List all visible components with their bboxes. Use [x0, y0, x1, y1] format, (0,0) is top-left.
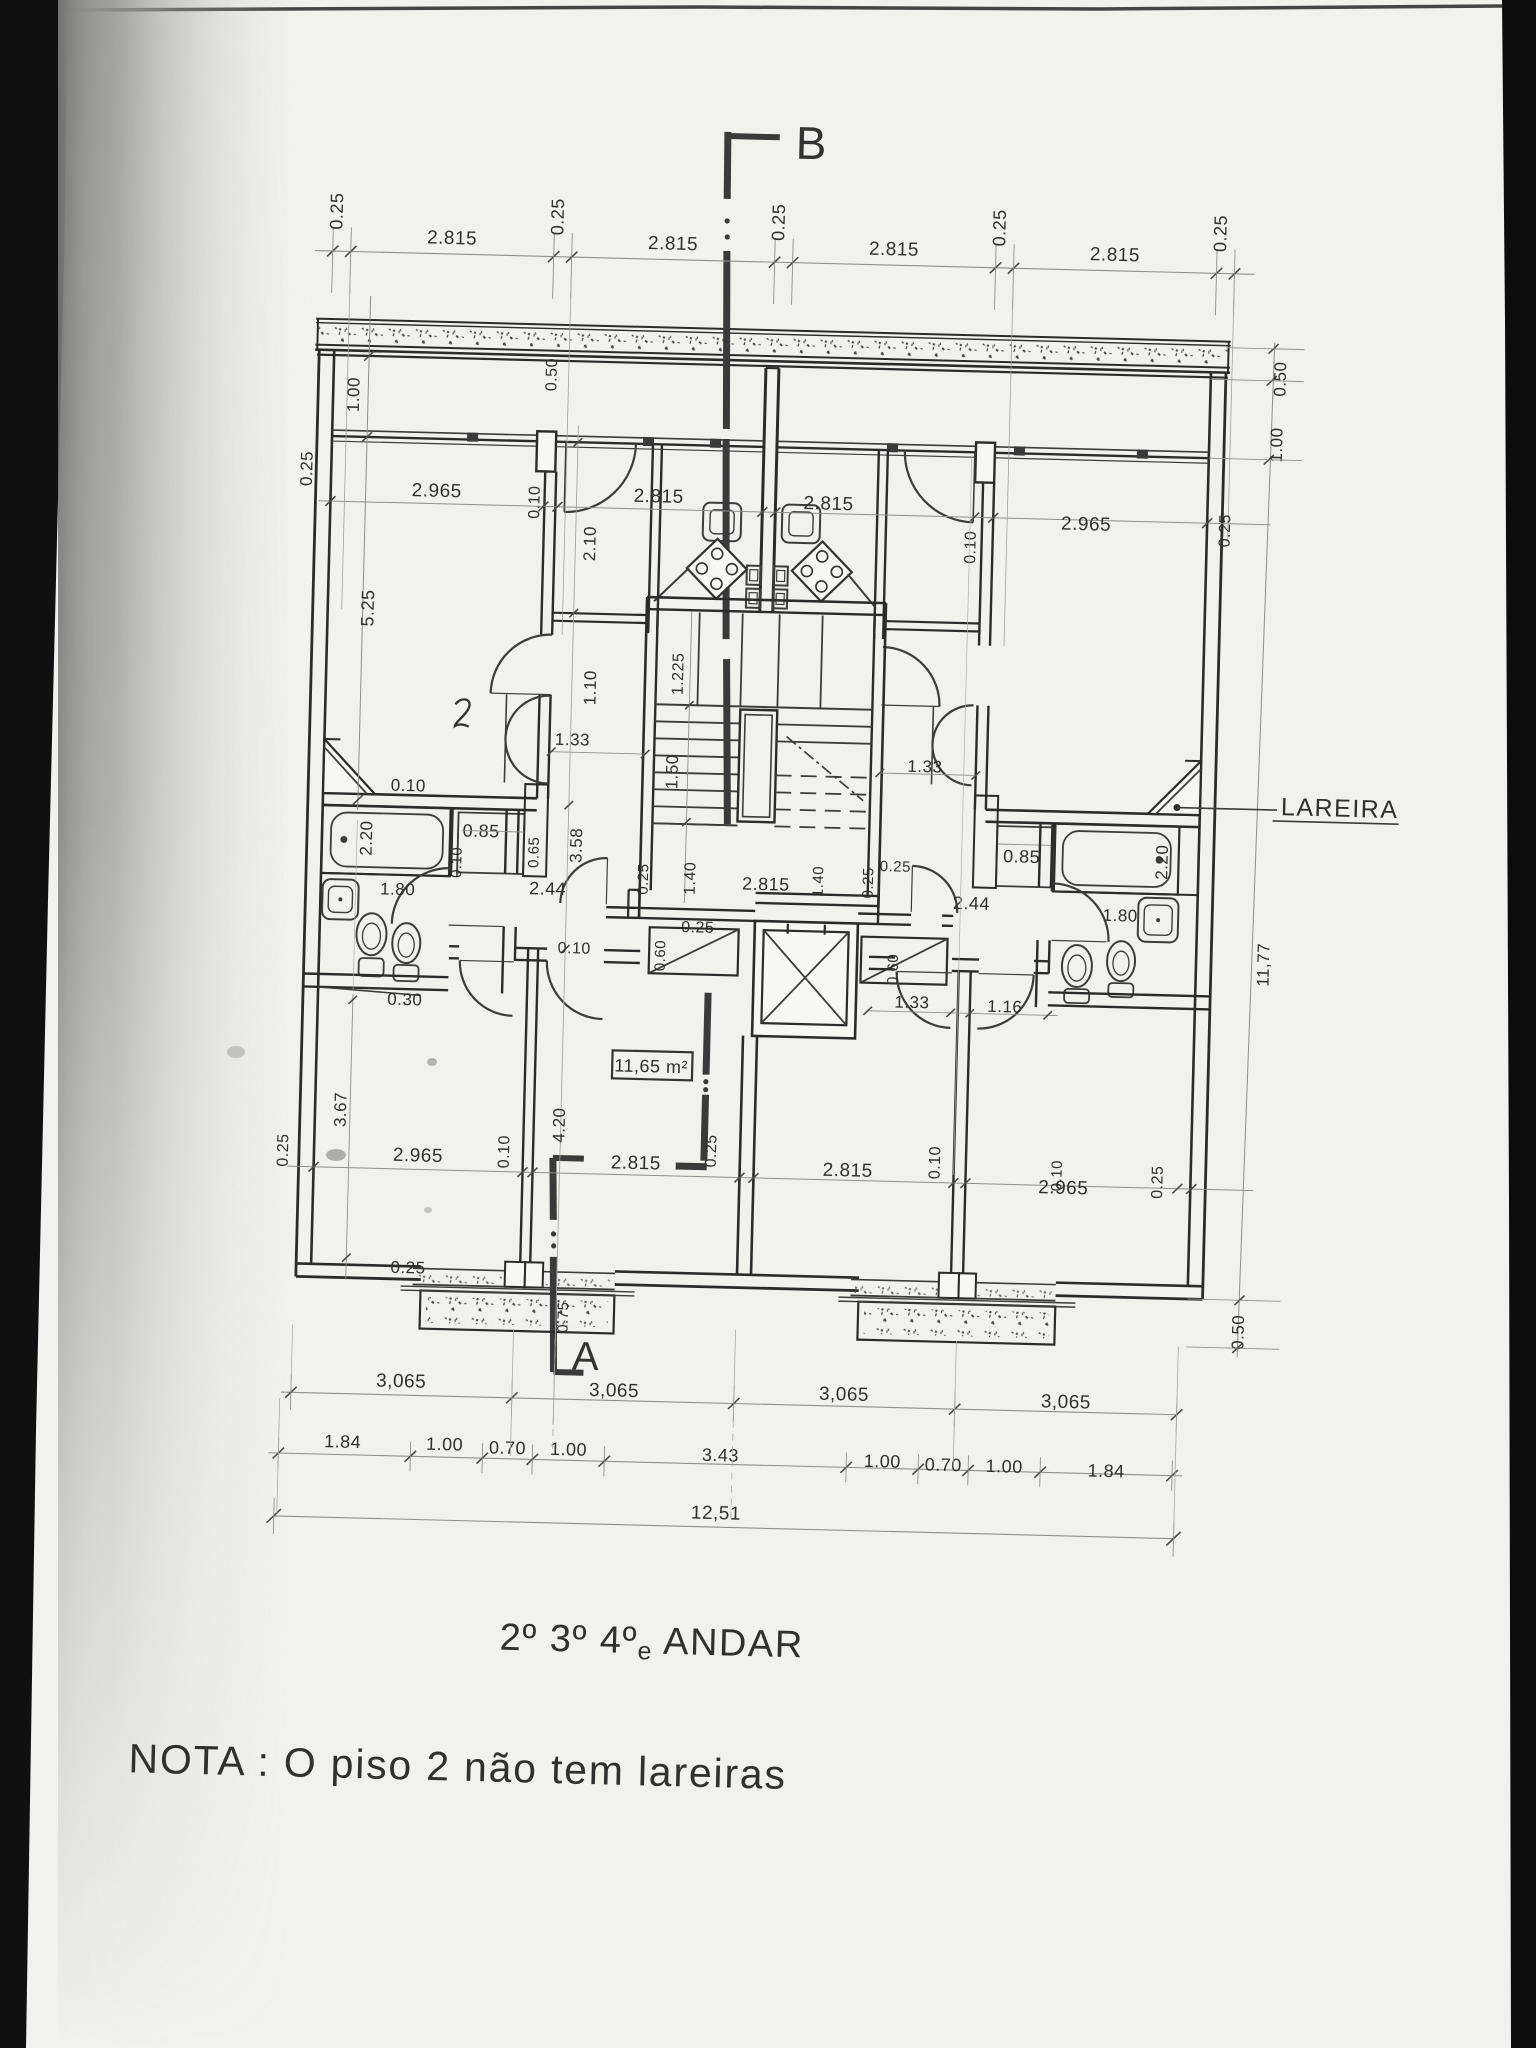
svg-text:2.815: 2.815 [803, 493, 854, 515]
svg-text:A: A [571, 1334, 600, 1379]
svg-text:1.00: 1.00 [550, 1439, 588, 1460]
svg-text:0.10: 0.10 [962, 530, 980, 564]
svg-text:0.10: 0.10 [496, 1135, 514, 1169]
svg-text:0.50: 0.50 [1270, 361, 1290, 397]
svg-text:0.70: 0.70 [489, 1437, 527, 1458]
svg-text:1.84: 1.84 [1087, 1460, 1125, 1481]
svg-text:0.25: 0.25 [390, 1258, 426, 1278]
svg-text:0.25: 0.25 [681, 919, 715, 937]
svg-text:1.40: 1.40 [682, 861, 700, 895]
svg-text:3.58: 3.58 [566, 828, 586, 864]
svg-text:2.815: 2.815 [1090, 244, 1141, 266]
svg-text:0.25: 0.25 [703, 1134, 721, 1168]
svg-text:0.25: 0.25 [326, 192, 347, 230]
svg-text:11,65 m²: 11,65 m² [614, 1055, 688, 1077]
svg-text:2.44: 2.44 [953, 893, 991, 914]
svg-text:2.815: 2.815 [742, 874, 790, 895]
svg-text:0.75: 0.75 [554, 1301, 572, 1333]
svg-text:3.67: 3.67 [331, 1092, 351, 1128]
svg-text:1.33: 1.33 [555, 730, 591, 750]
svg-text:2.815: 2.815 [427, 227, 478, 249]
svg-text:0.10: 0.10 [557, 940, 591, 958]
svg-text:1.33: 1.33 [894, 992, 930, 1012]
svg-text:0.50: 0.50 [543, 358, 561, 392]
svg-text:3.43: 3.43 [702, 1445, 740, 1466]
svg-text:5.25: 5.25 [357, 589, 378, 627]
svg-text:2.815: 2.815 [633, 486, 684, 508]
svg-text:2.965: 2.965 [393, 1145, 444, 1167]
svg-text:0.50: 0.50 [1228, 1314, 1248, 1350]
svg-text:0.25: 0.25 [635, 863, 653, 895]
svg-text:1.80: 1.80 [1102, 906, 1138, 926]
svg-text:1.00: 1.00 [985, 1456, 1023, 1477]
svg-text:B: B [795, 117, 828, 170]
svg-text:0.25: 0.25 [989, 209, 1010, 247]
svg-text:2.20: 2.20 [356, 820, 376, 856]
svg-text:0.25: 0.25 [860, 867, 878, 899]
svg-text:0.60: 0.60 [884, 954, 902, 986]
svg-text:2.44: 2.44 [529, 878, 567, 899]
svg-text:0.65: 0.65 [525, 836, 543, 868]
svg-text:1.00: 1.00 [1267, 427, 1287, 463]
svg-text:2.815: 2.815 [610, 1152, 661, 1174]
svg-text:1.10: 1.10 [580, 670, 600, 706]
svg-text:2.815: 2.815 [822, 1160, 873, 1182]
svg-text:0.25: 0.25 [1149, 1165, 1167, 1199]
svg-text:12,51: 12,51 [691, 1502, 742, 1524]
svg-text:1.80: 1.80 [380, 879, 416, 899]
svg-text:0.25: 0.25 [547, 198, 568, 236]
svg-text:11,77: 11,77 [1253, 943, 1273, 987]
svg-text:2.815: 2.815 [869, 239, 920, 261]
svg-text:0.10: 0.10 [448, 847, 466, 879]
svg-text:1.00: 1.00 [426, 1434, 464, 1455]
svg-text:LAREIRA: LAREIRA [1281, 793, 1399, 824]
svg-text:2.10: 2.10 [580, 526, 600, 562]
svg-text:1.40: 1.40 [810, 866, 828, 898]
svg-text:3,065: 3,065 [376, 1370, 427, 1392]
svg-text:0.10: 0.10 [526, 485, 544, 519]
svg-text:2.815: 2.815 [648, 233, 699, 255]
svg-text:1.84: 1.84 [324, 1431, 362, 1452]
svg-text:1.00: 1.00 [864, 1451, 902, 1472]
svg-text:3,065: 3,065 [819, 1384, 870, 1406]
svg-text:1.00: 1.00 [344, 377, 364, 413]
svg-text:0.25: 0.25 [275, 1133, 293, 1167]
svg-text:3,065: 3,065 [1041, 1391, 1092, 1413]
svg-text:0.70: 0.70 [924, 1454, 962, 1475]
svg-text:0.25: 0.25 [880, 858, 912, 876]
svg-text:0.10: 0.10 [926, 1146, 944, 1180]
svg-text:0.10: 0.10 [1048, 1160, 1066, 1192]
svg-text:2.965: 2.965 [1061, 514, 1112, 536]
svg-text:3,065: 3,065 [589, 1380, 640, 1402]
svg-text:0.25: 0.25 [1210, 215, 1231, 253]
svg-text:2.20: 2.20 [1152, 844, 1172, 880]
svg-text:0.60: 0.60 [652, 940, 670, 972]
svg-text:0.25: 0.25 [1217, 514, 1235, 548]
svg-text:0.25: 0.25 [768, 204, 789, 242]
svg-text:0.10: 0.10 [390, 776, 426, 796]
svg-text:1.50: 1.50 [662, 754, 682, 790]
svg-text:0.30: 0.30 [387, 990, 423, 1010]
svg-text:2.965: 2.965 [411, 480, 462, 502]
svg-text:0.25: 0.25 [297, 451, 317, 487]
svg-text:1.225: 1.225 [670, 652, 688, 695]
svg-text:0.85: 0.85 [1003, 846, 1041, 867]
svg-text:4.20: 4.20 [549, 1107, 569, 1143]
